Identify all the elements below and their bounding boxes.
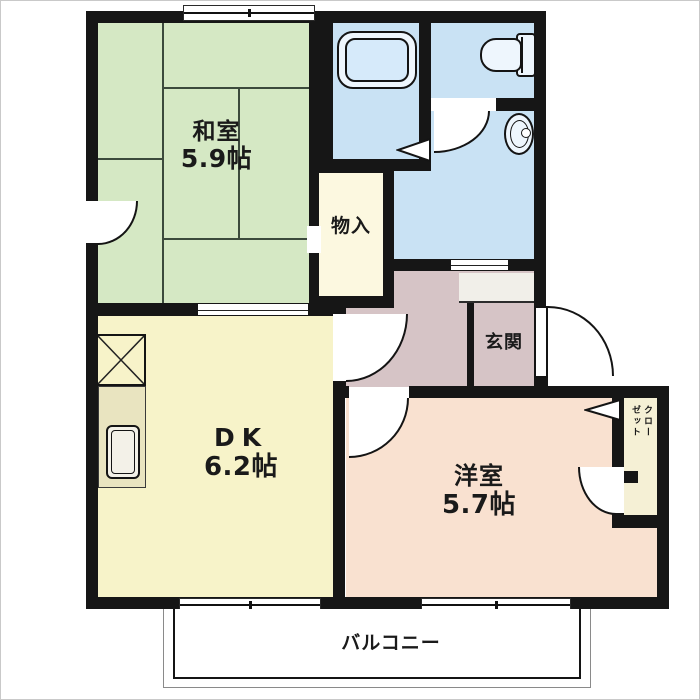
room-label-yoshitsu: 洋室 5.7帖	[399, 463, 559, 520]
sliding-door-washroom	[451, 260, 508, 270]
bathtub-inner	[345, 38, 409, 82]
tatami-line	[162, 87, 309, 89]
wall-monoire-top	[309, 161, 394, 173]
bathtub-icon	[337, 31, 417, 89]
kitchen-counter	[98, 386, 146, 488]
sliding-window-icon	[183, 5, 315, 21]
room-label-genkan: 玄関	[473, 333, 535, 354]
door-opening	[86, 201, 98, 243]
door-opening	[431, 98, 496, 111]
room-label-balcony: バルコニー	[316, 633, 466, 655]
wall-hall-dk-divider	[333, 303, 346, 314]
wall-hall-yoshitsu	[333, 386, 349, 398]
wall-right-lower	[657, 386, 669, 609]
wall-toilet-bottom	[496, 98, 534, 111]
room-name: DK	[166, 424, 316, 453]
room-label-washitsu: 和室 5.9帖	[149, 119, 284, 174]
door-opening	[349, 387, 409, 398]
wall-hall-yoshitsu	[409, 386, 549, 398]
room-name: 和室	[149, 119, 284, 145]
wall-washitsu-right	[309, 11, 321, 161]
entrance-door-leaf	[534, 306, 548, 378]
bath-door-swing-icon	[396, 137, 432, 163]
door-opening	[333, 314, 346, 381]
refrigerator-space-icon	[98, 334, 146, 386]
kitchen-sink-icon	[106, 425, 140, 479]
washbasin-faucet	[521, 128, 531, 138]
room-size: 5.9帖	[149, 145, 284, 174]
room-size: 5.7帖	[399, 491, 559, 521]
room-name: 洋室	[399, 463, 559, 491]
kitchen-sink-inner	[111, 430, 135, 474]
room-size: 6.2帖	[166, 453, 316, 483]
wall-bath-left	[321, 11, 333, 171]
room-label-monoire: 物入	[317, 216, 385, 238]
entrance-door-swing-icon	[548, 306, 614, 376]
wall-closet-bottom	[612, 515, 657, 528]
floor-plan-canvas: 和室 5.9帖 物入 玄関 DK 6.2帖 洋室 5.7帖 クローゼット バルコ…	[0, 0, 700, 700]
wall-extension-top	[546, 386, 669, 398]
toilet-bowl	[480, 38, 522, 72]
room-label-dk: DK 6.2帖	[166, 424, 316, 483]
genkan-step	[459, 273, 534, 303]
tatami-line	[162, 238, 309, 240]
room-label-closet: クローゼット	[623, 401, 653, 441]
wall-dk-yoshitsu-divider	[333, 398, 345, 597]
room-washroom-floor	[394, 171, 431, 259]
closet-door-swing-icon	[584, 399, 622, 421]
sliding-door-washitsu-dk	[198, 304, 308, 315]
wall-bottom	[86, 597, 669, 609]
